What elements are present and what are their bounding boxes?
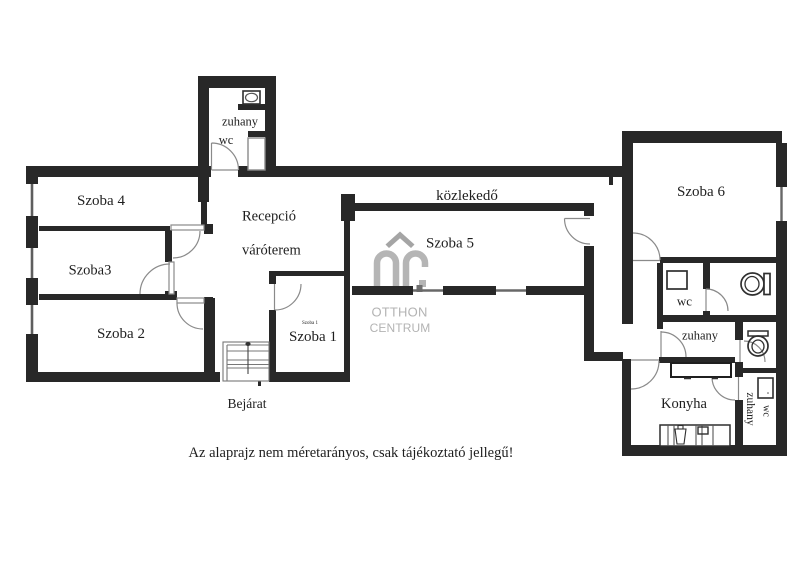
svg-text:zuhany: zuhany — [744, 392, 756, 425]
svg-text:Szoba 1: Szoba 1 — [302, 321, 318, 326]
svg-text:közlekedő: közlekedő — [436, 188, 498, 204]
svg-text:zuhany: zuhany — [682, 329, 719, 343]
svg-text:wc: wc — [219, 133, 234, 147]
svg-text:váróterem: váróterem — [242, 243, 301, 259]
svg-text:Recepció: Recepció — [242, 209, 296, 225]
svg-text:Az alaprajz nem méretarányos,: Az alaprajz nem méretarányos, csak tájék… — [189, 445, 514, 461]
svg-text:Szoba 5: Szoba 5 — [426, 236, 474, 252]
svg-text:Szoba 6: Szoba 6 — [677, 184, 725, 200]
svg-text:CENTRUM: CENTRUM — [370, 321, 431, 335]
svg-text:Szoba 2: Szoba 2 — [97, 326, 145, 342]
svg-text:wc: wc — [677, 294, 692, 309]
svg-text:Szoba 1: Szoba 1 — [289, 329, 337, 345]
svg-text:Bejárat: Bejárat — [228, 396, 267, 411]
svg-text:Konyha: Konyha — [661, 396, 707, 412]
svg-text:wc: wc — [761, 405, 772, 417]
svg-text:zuhany: zuhany — [222, 115, 259, 129]
svg-text:Szoba 4: Szoba 4 — [77, 193, 125, 209]
svg-text:Szoba3: Szoba3 — [69, 263, 112, 279]
svg-text:OTTHON: OTTHON — [371, 305, 427, 320]
